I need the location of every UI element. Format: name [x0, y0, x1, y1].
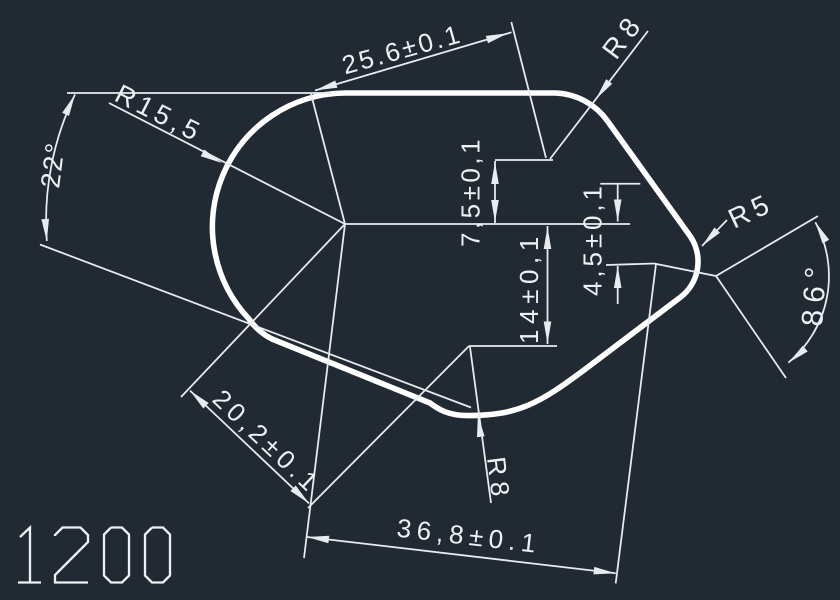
svg-text:R8: R8	[481, 455, 516, 504]
svg-text:22°: 22°	[35, 140, 70, 190]
svg-text:7,5±0,1: 7,5±0,1	[456, 136, 486, 247]
svg-text:4,5±0,1: 4,5±0,1	[577, 182, 607, 296]
svg-text:86°: 86°	[796, 259, 834, 328]
svg-text:14±0,1: 14±0,1	[514, 231, 544, 344]
